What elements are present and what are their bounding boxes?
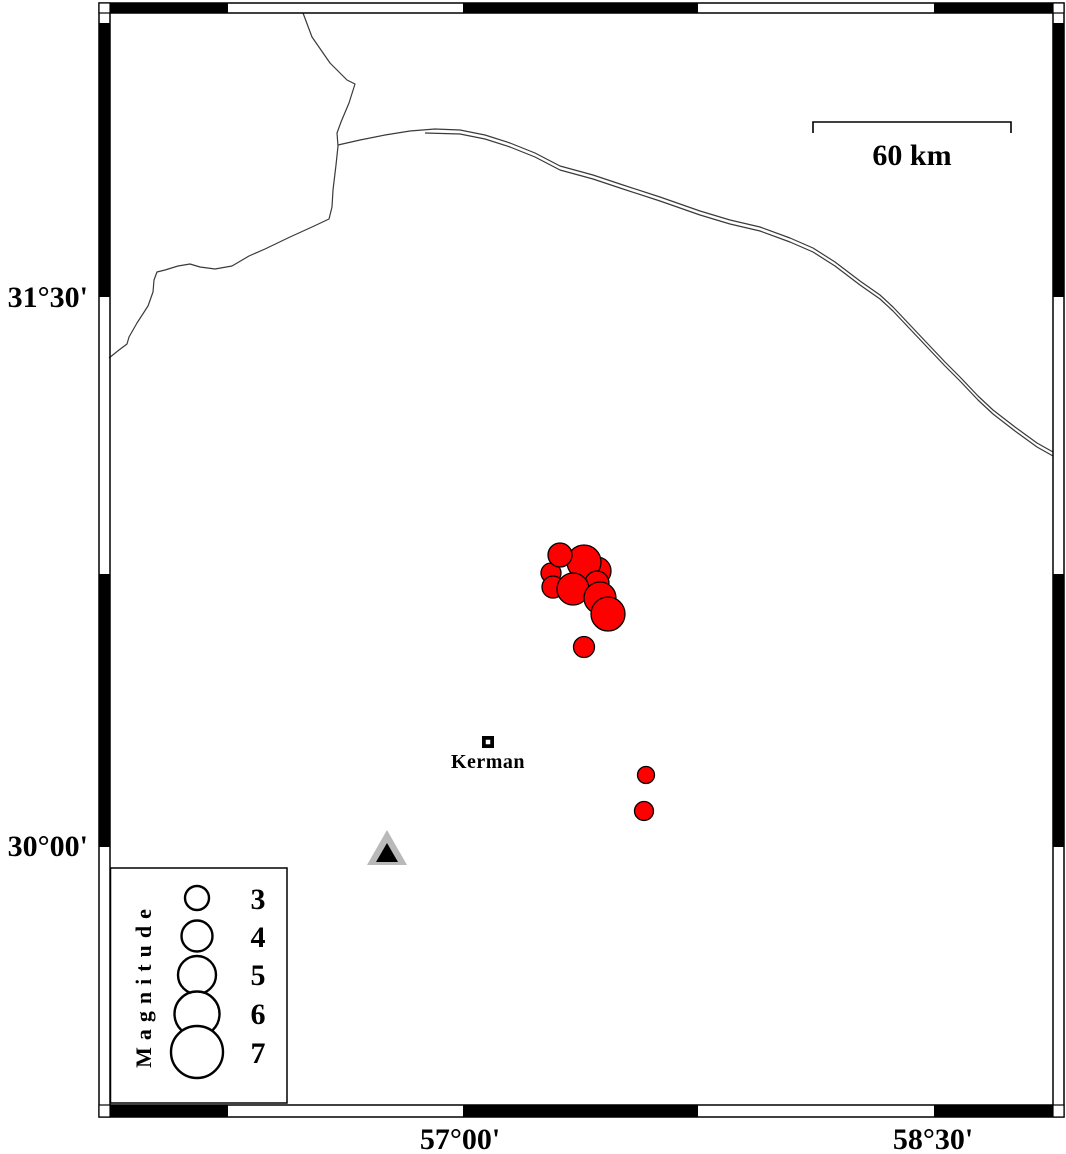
frame-tick-left	[99, 23, 110, 297]
map-svg: 31°30' 30°00' 57°00' 58°30' 60 km Kerman…	[0, 0, 1066, 1154]
earthquake-circle	[635, 802, 654, 821]
frame-tick-right	[1053, 574, 1064, 847]
earthquake-circle	[548, 543, 572, 567]
legend-title: Magnitude	[131, 902, 156, 1068]
legend-circle-7	[171, 1026, 223, 1078]
fault-east-lower	[425, 133, 1053, 456]
legend-circle-3	[185, 886, 209, 910]
city-square-inner	[486, 740, 491, 745]
frame-tick-bottom	[110, 1105, 228, 1117]
frame-tick-bottom	[463, 1105, 698, 1117]
lon-label-left: 57°00'	[420, 1123, 500, 1154]
earthquake-circle	[638, 767, 655, 784]
frame-corner	[1053, 1105, 1064, 1117]
scale-bar	[813, 122, 1011, 133]
scale-bar-label: 60 km	[872, 139, 951, 172]
frame-tick-bottom	[934, 1105, 1053, 1117]
fault-east-upper	[338, 129, 1053, 452]
frame-tick-left	[99, 574, 110, 847]
lat-label-top: 31°30'	[8, 281, 88, 314]
legend-num-3: 3	[251, 883, 266, 916]
legend-num-7: 7	[251, 1037, 266, 1070]
frame-tick-top	[934, 3, 1053, 13]
earthquake-circle	[574, 637, 595, 658]
legend-circle-5	[178, 956, 216, 994]
legend-circle-4	[182, 921, 213, 952]
lat-label-bottom: 30°00'	[8, 830, 88, 863]
earthquake-circle	[591, 597, 625, 631]
fault-lines	[109, 13, 1053, 456]
station-marker	[367, 830, 407, 865]
earthquake-markers	[541, 543, 655, 821]
scale-bar-bracket	[813, 122, 1011, 133]
city-label: Kerman	[451, 751, 525, 773]
frame-tick-top	[110, 3, 228, 13]
lon-label-right: 58°30'	[893, 1123, 973, 1154]
seismicity-map: 31°30' 30°00' 57°00' 58°30' 60 km Kerman…	[0, 0, 1066, 1154]
frame-tick-top	[463, 3, 698, 13]
frame-corner	[99, 3, 110, 13]
frame-corner	[99, 1105, 110, 1117]
legend-num-5: 5	[251, 959, 266, 992]
legend-num-6: 6	[251, 998, 266, 1031]
fault-west-branch	[109, 13, 355, 358]
city-marker	[482, 736, 494, 748]
frame-corner	[1053, 3, 1064, 13]
legend-num-4: 4	[251, 921, 266, 954]
frame-tick-right	[1053, 23, 1064, 297]
